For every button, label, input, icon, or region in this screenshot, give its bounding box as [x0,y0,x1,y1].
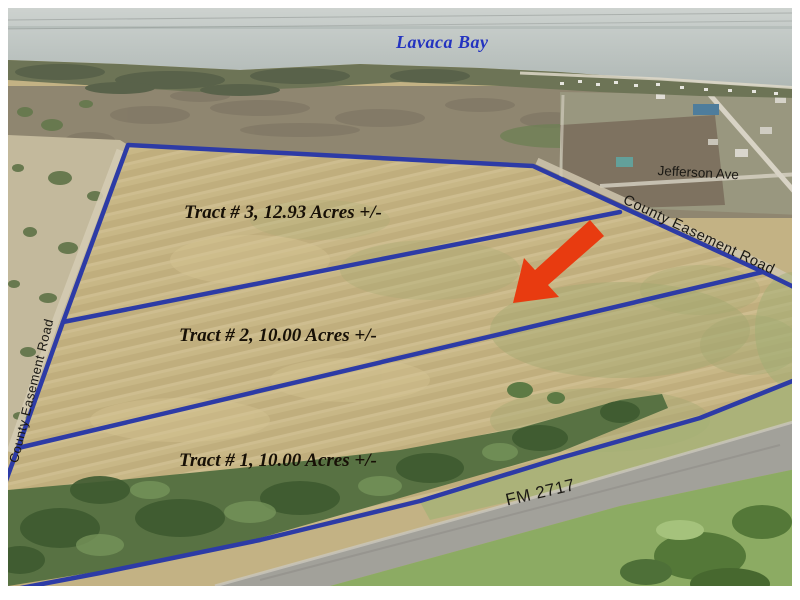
tract-1-label: Tract # 1, 10.00 Acres +/- [179,451,377,470]
aerial-photo [8,8,792,586]
aerial-photo-art [8,8,792,586]
bay-label: Lavaca Bay [396,33,488,51]
listing-photo-stage: Lavaca Bay Jefferson Ave County Easement… [0,0,800,600]
tract-3-label: Tract # 3, 12.93 Acres +/- [184,203,382,222]
tract-2-label: Tract # 2, 10.00 Acres +/- [179,326,377,345]
